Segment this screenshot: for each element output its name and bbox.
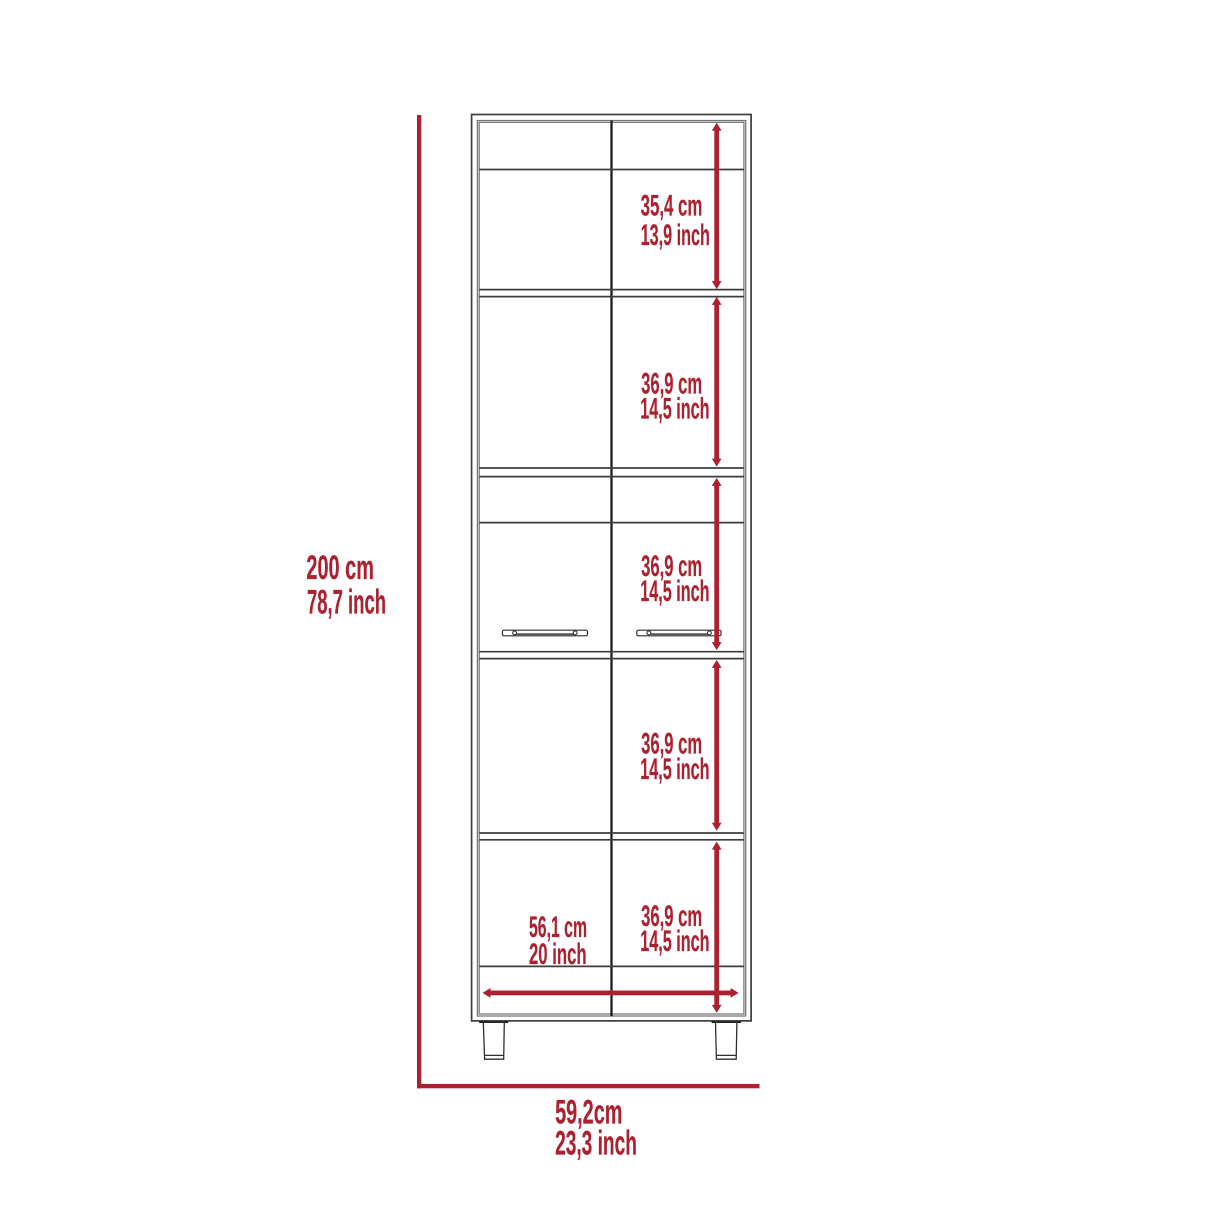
svg-text:14,5 inch: 14,5 inch xyxy=(640,753,709,786)
svg-text:14,5 inch: 14,5 inch xyxy=(640,392,709,425)
svg-text:200 cm: 200 cm xyxy=(306,549,374,587)
svg-text:14,5 inch: 14,5 inch xyxy=(640,575,709,608)
svg-text:35,4 cm: 35,4 cm xyxy=(641,189,703,222)
svg-text:20 inch: 20 inch xyxy=(529,938,587,971)
svg-text:78,7 inch: 78,7 inch xyxy=(307,584,386,622)
svg-text:14,5 inch: 14,5 inch xyxy=(640,925,709,958)
svg-text:13,9 inch: 13,9 inch xyxy=(641,219,710,252)
svg-text:23,3 inch: 23,3 inch xyxy=(555,1125,637,1163)
